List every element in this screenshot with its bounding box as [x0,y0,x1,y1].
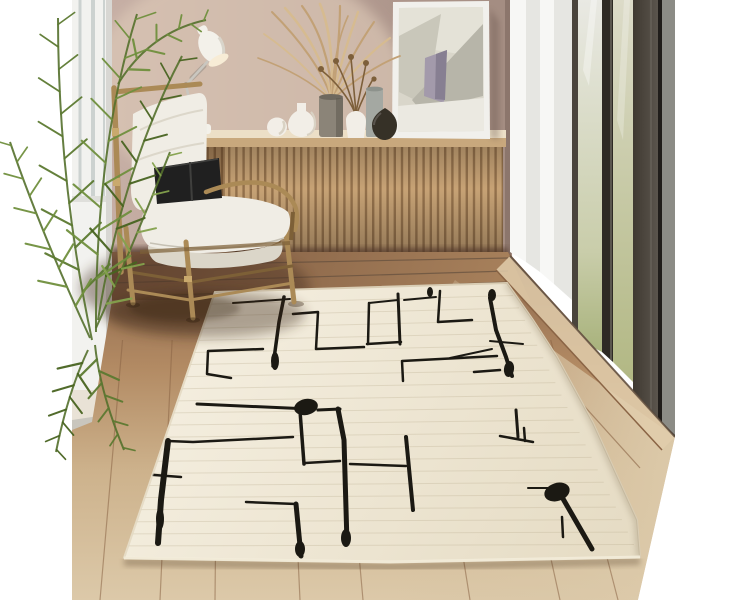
rug-pattern-stroke [524,428,525,441]
rug-pattern-stroke [562,517,563,537]
blue-vase-rim [366,87,383,92]
rug-pattern-blob [156,508,164,530]
door-frame-line [658,0,662,428]
rug-pattern-blob [427,287,433,297]
curtain-fold [540,0,554,284]
rug-pattern-stroke [516,410,518,437]
outer-frame-strip [662,0,675,437]
scene-canvas [0,0,750,600]
curtain-fold [526,0,540,272]
rug-pattern-stroke [368,303,369,344]
rug-pattern-blob [341,529,351,547]
frame-wall-shadow [490,8,499,140]
cylinder-vase-shade [336,98,343,137]
palm-leaflet [128,69,149,70]
sideboard-top-edge [160,138,506,147]
art-plane-lavender-dark [435,50,447,100]
armrest-support [291,212,293,240]
sliding-door-stile [633,0,658,424]
curtain-fold [554,0,572,300]
rug-pattern-stroke [398,294,400,344]
rattan-binding [112,128,119,136]
door-frame [572,0,578,340]
artwork-frame [392,1,499,140]
rug-pattern-blob [295,541,305,557]
curtain-fold [510,0,526,262]
rug-pattern-blob [488,289,496,301]
rattan-binding [184,276,192,282]
product-photo-interior-scene [0,0,750,600]
organic-white-vase [346,111,366,138]
leg-contact-shadow [126,302,140,307]
rug-pattern-blob [271,352,279,370]
left-white-band [0,0,72,600]
leg-contact-shadow [186,317,200,322]
